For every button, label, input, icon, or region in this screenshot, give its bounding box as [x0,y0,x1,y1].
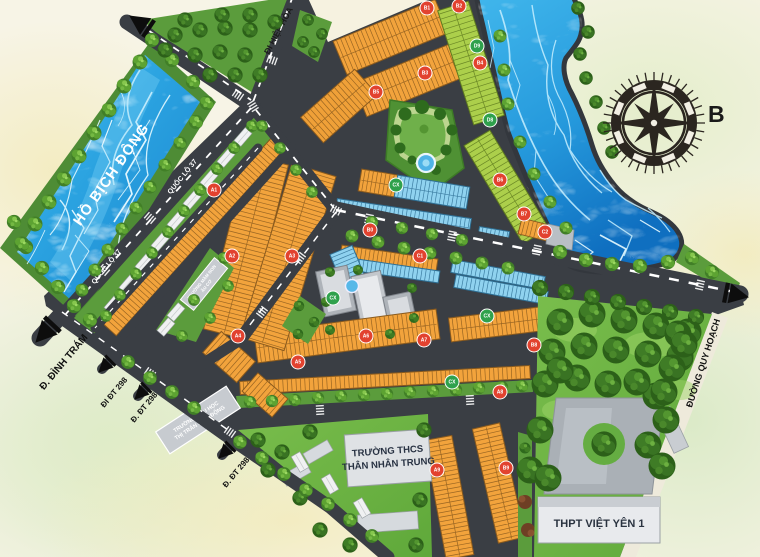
svg-text:CX: CX [449,380,457,386]
svg-text:A3: A3 [289,254,296,260]
svg-text:C1: C1 [417,254,424,260]
svg-text:A6: A6 [363,334,370,340]
svg-text:A5: A5 [295,360,302,366]
svg-text:B6: B6 [497,178,504,184]
svg-text:D9: D9 [474,44,481,50]
svg-text:B0: B0 [367,228,374,234]
svg-text:A8: A8 [497,390,504,396]
svg-text:D8: D8 [487,118,494,124]
svg-text:B4: B4 [477,61,484,67]
svg-text:C2: C2 [542,230,549,236]
svg-text:B5: B5 [373,90,380,96]
svg-text:B3: B3 [422,71,429,77]
svg-text:A2: A2 [229,254,236,260]
svg-text:B2: B2 [456,4,463,10]
svg-text:CX: CX [330,296,338,302]
svg-text:B1: B1 [424,6,431,12]
svg-text:B7: B7 [521,212,528,218]
svg-text:CX: CX [393,183,401,189]
svg-text:B8: B8 [531,343,538,349]
svg-text:CX: CX [484,314,492,320]
svg-text:A4: A4 [235,334,242,340]
svg-text:B: B [708,101,725,127]
svg-text:A1: A1 [211,188,218,194]
svg-text:B9: B9 [503,466,510,472]
svg-text:A9: A9 [434,468,441,474]
svg-text:THPT VIỆT YÊN 1: THPT VIỆT YÊN 1 [554,517,645,530]
svg-text:A7: A7 [421,338,428,344]
